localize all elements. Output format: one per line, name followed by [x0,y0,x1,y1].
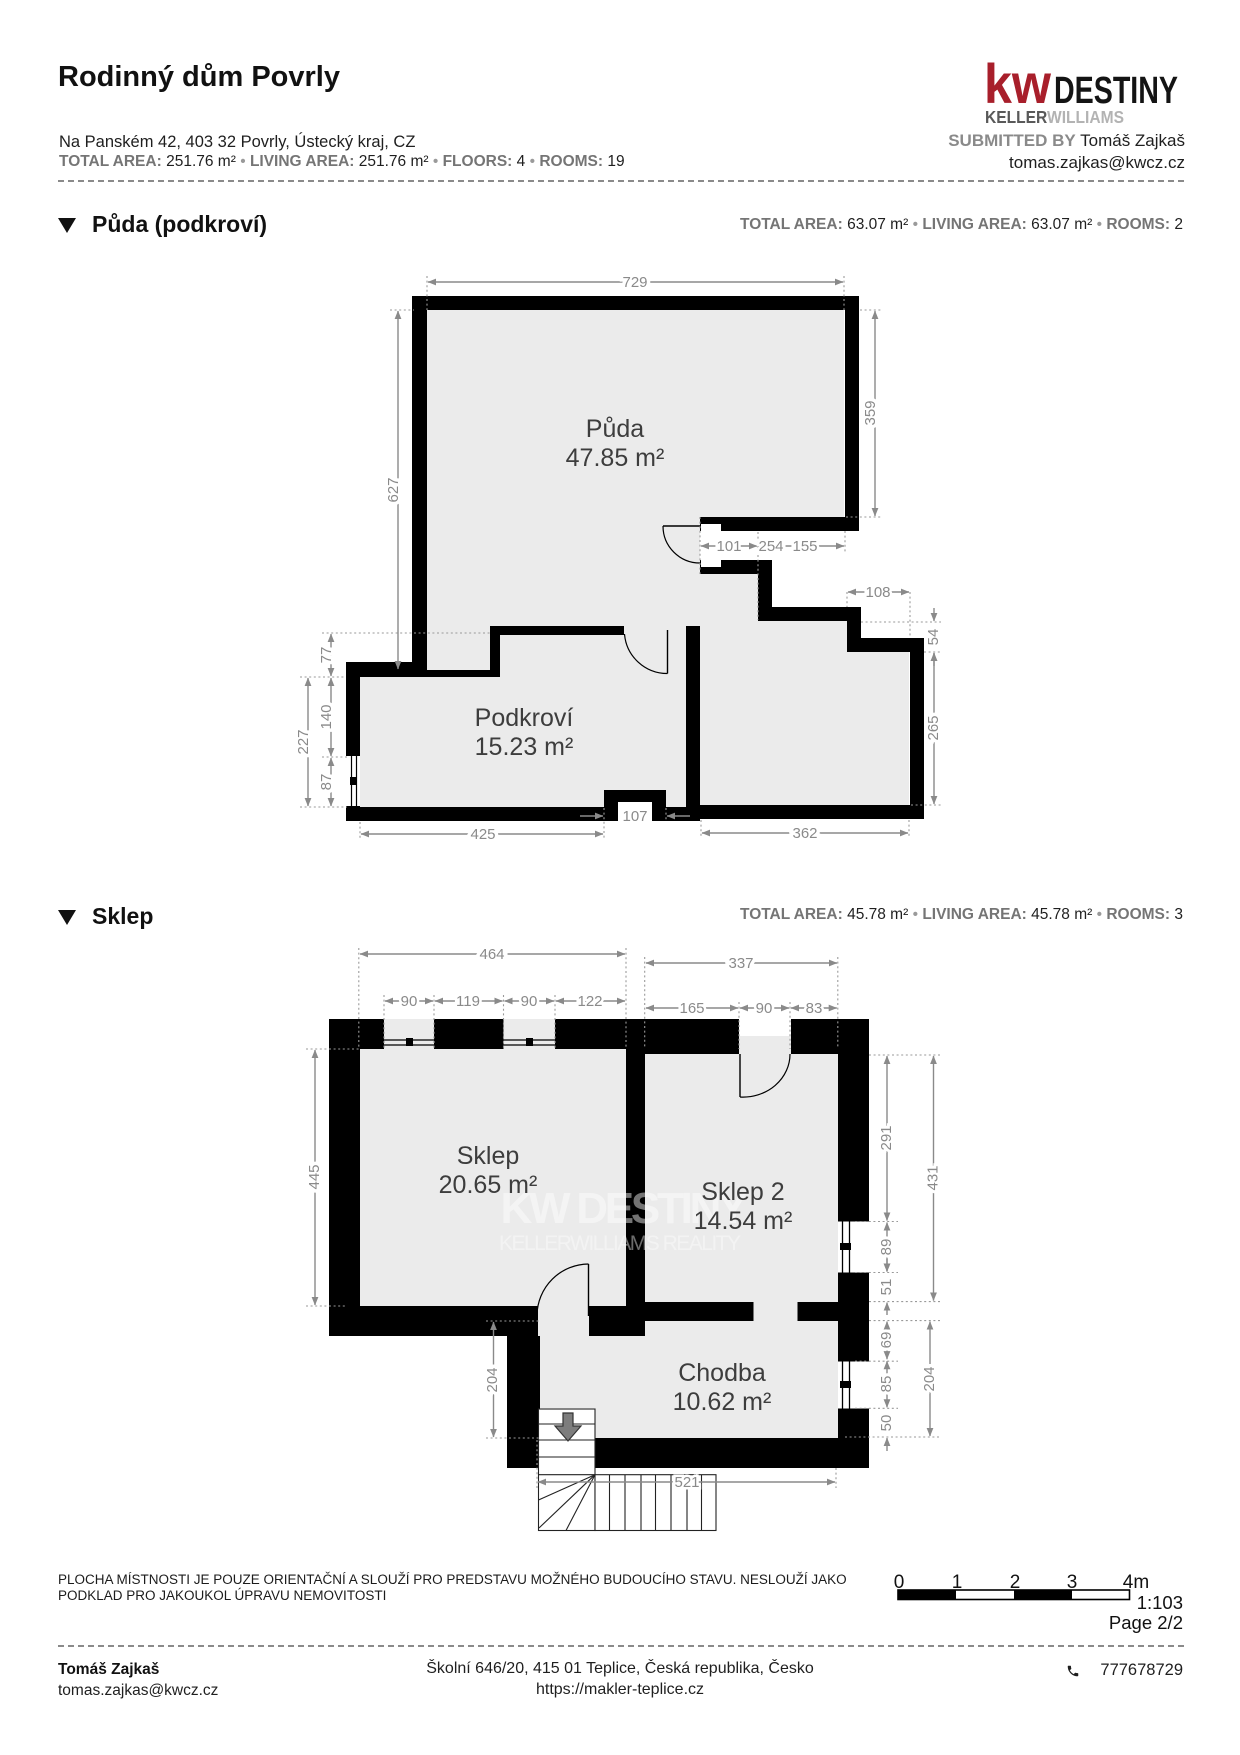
svg-text:89: 89 [878,1239,895,1256]
svg-text:20.65 m²: 20.65 m² [439,1171,538,1199]
svg-text:50: 50 [878,1415,895,1432]
svg-text:69: 69 [878,1332,895,1349]
svg-text:227: 227 [295,729,312,754]
svg-text:155: 155 [792,538,817,555]
svg-text:107: 107 [622,808,647,825]
svg-text:77: 77 [318,647,335,664]
svg-text:265: 265 [925,715,942,740]
svg-text:10.62 m²: 10.62 m² [673,1388,772,1416]
svg-text:Chodba: Chodba [678,1359,766,1387]
svg-text:15.23 m²: 15.23 m² [475,733,574,761]
svg-text:90: 90 [401,993,418,1010]
svg-text:337: 337 [728,955,753,972]
svg-text:254: 254 [758,538,783,555]
svg-text:85: 85 [878,1376,895,1393]
svg-text:KELLERWILLIAMS: KELLERWILLIAMS [985,107,1124,127]
svg-text:291: 291 [878,1125,895,1150]
svg-text:122: 122 [577,993,602,1010]
svg-text:362: 362 [792,825,817,842]
svg-text:90: 90 [521,993,538,1010]
svg-text:140: 140 [318,704,335,729]
svg-text:Půda: Půda [586,415,644,443]
svg-text:431: 431 [925,1165,942,1190]
svg-text:119: 119 [456,993,480,1010]
svg-text:729: 729 [622,274,647,291]
svg-text:464: 464 [479,946,504,963]
svg-text:51: 51 [878,1279,895,1296]
svg-text:627: 627 [385,477,402,502]
svg-text:204: 204 [921,1366,938,1391]
svg-text:521: 521 [674,1474,699,1491]
svg-text:DESTINY: DESTINY [1054,70,1178,112]
svg-text:359: 359 [862,400,879,425]
svg-text:87: 87 [318,774,335,791]
svg-text:47.85 m²: 47.85 m² [566,444,665,472]
svg-text:kw: kw [984,52,1051,115]
svg-text:54: 54 [925,629,942,646]
svg-text:Sklep: Sklep [457,1142,520,1170]
svg-text:445: 445 [306,1164,323,1189]
svg-text:Sklep 2: Sklep 2 [701,1178,784,1206]
svg-text:101: 101 [716,538,741,555]
svg-text:425: 425 [470,826,495,843]
svg-text:14.54 m²: 14.54 m² [694,1207,793,1235]
svg-text:90: 90 [756,1000,773,1017]
svg-text:204: 204 [484,1367,501,1392]
svg-text:83: 83 [806,1000,823,1017]
svg-text:165: 165 [679,1000,704,1017]
svg-text:108: 108 [865,584,890,601]
svg-text:KELLERWILLIAMS REALITY: KELLERWILLIAMS REALITY [499,1232,741,1255]
svg-text:Podkroví: Podkroví [475,704,574,732]
